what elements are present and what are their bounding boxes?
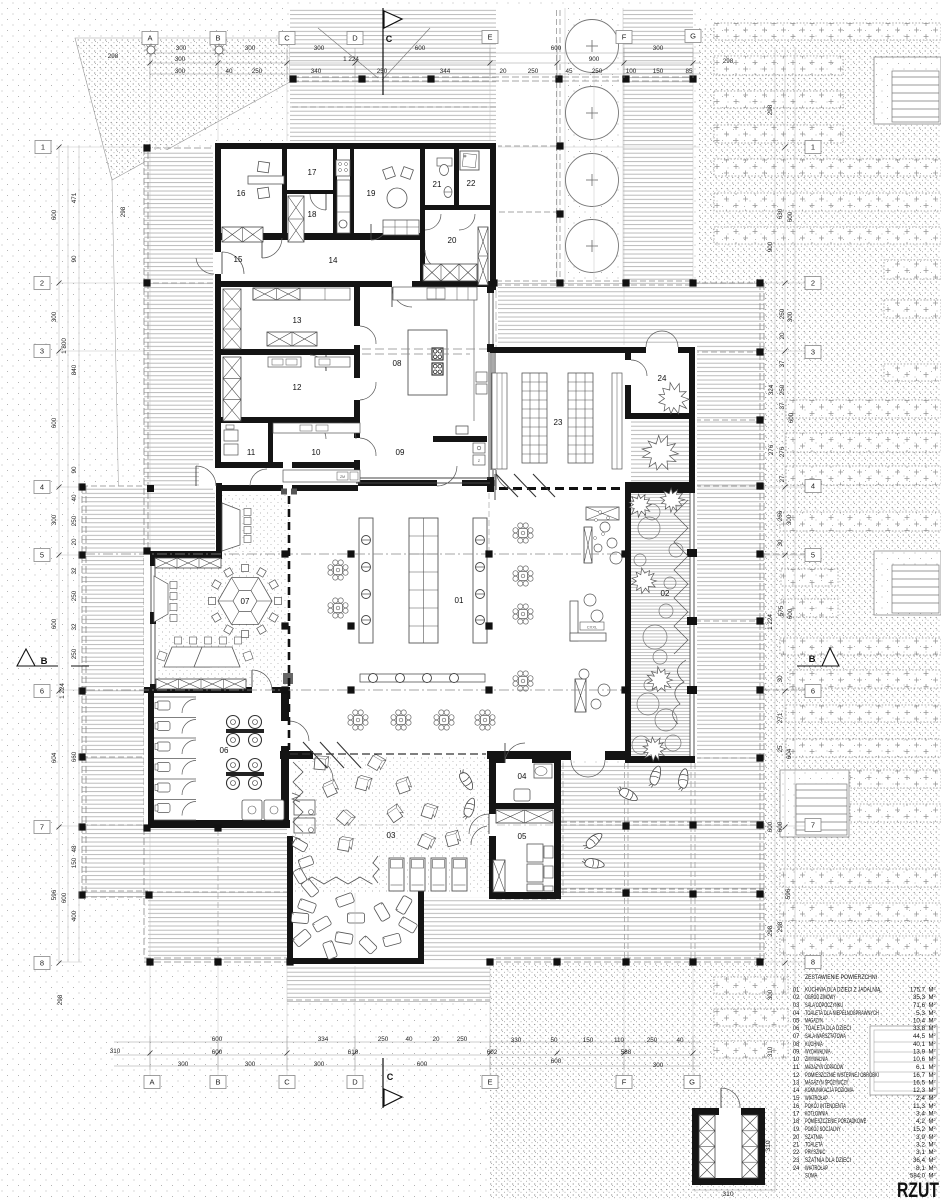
svg-text:16: 16 xyxy=(237,189,246,198)
svg-text:POMIESZCZENIE PORZĄDKOWE: POMIESZCZENIE PORZĄDKOWE xyxy=(805,1118,866,1125)
svg-text:ZMYWALNIA: ZMYWALNIA xyxy=(805,1056,828,1063)
svg-text:610: 610 xyxy=(348,1049,359,1056)
svg-text:276: 276 xyxy=(768,444,775,455)
svg-text:600: 600 xyxy=(417,1061,428,1068)
svg-text:10: 10 xyxy=(312,448,321,457)
svg-text:6: 6 xyxy=(811,687,815,696)
svg-text:8: 8 xyxy=(40,959,44,968)
svg-text:35,3: 35,3 xyxy=(913,994,926,1001)
svg-text:600: 600 xyxy=(51,417,58,428)
svg-text:G: G xyxy=(690,32,696,41)
svg-text:45: 45 xyxy=(565,68,573,75)
svg-text:WIATROŁAP: WIATROŁAP xyxy=(805,1165,828,1172)
svg-text:2: 2 xyxy=(40,279,44,288)
svg-text:08: 08 xyxy=(393,359,402,368)
svg-text:37: 37 xyxy=(779,360,786,368)
svg-text:03: 03 xyxy=(793,1002,800,1009)
svg-text:14: 14 xyxy=(793,1087,800,1094)
svg-text:TOALETA DLA NIEPEŁNOSPRAWNYCH: TOALETA DLA NIEPEŁNOSPRAWNYCH xyxy=(805,1010,879,1017)
svg-text:630: 630 xyxy=(777,208,784,219)
svg-text:340: 340 xyxy=(311,68,322,75)
svg-text:250: 250 xyxy=(378,1036,389,1043)
svg-text:48: 48 xyxy=(71,845,78,853)
svg-text:250: 250 xyxy=(377,68,388,75)
svg-text:15: 15 xyxy=(234,255,243,264)
svg-text:F: F xyxy=(622,1078,627,1087)
svg-text:SALA ODPOCZYNKU: SALA ODPOCZYNKU xyxy=(805,1002,843,1009)
svg-text:C: C xyxy=(386,34,393,44)
svg-text:23: 23 xyxy=(554,418,563,427)
svg-text:03: 03 xyxy=(387,831,396,840)
svg-text:90: 90 xyxy=(71,466,78,474)
svg-text:40: 40 xyxy=(676,1037,684,1044)
svg-text:1: 1 xyxy=(811,143,815,152)
svg-text:27: 27 xyxy=(779,475,786,483)
svg-text:A: A xyxy=(147,34,152,43)
svg-text:19: 19 xyxy=(367,189,376,198)
svg-text:30: 30 xyxy=(777,675,784,683)
svg-text:21: 21 xyxy=(433,180,442,189)
svg-text:22: 22 xyxy=(467,179,476,188)
svg-text:04: 04 xyxy=(793,1010,800,1017)
svg-text:300: 300 xyxy=(653,45,664,52)
svg-text:44,5: 44,5 xyxy=(913,1033,926,1040)
svg-text:600: 600 xyxy=(767,821,774,832)
svg-text:C: C xyxy=(284,34,290,43)
svg-text:WIATROŁAP: WIATROŁAP xyxy=(805,1095,828,1102)
svg-text:02: 02 xyxy=(661,589,670,598)
svg-text:3: 3 xyxy=(811,348,815,357)
svg-text:40: 40 xyxy=(225,68,233,75)
svg-text:3: 3 xyxy=(40,347,44,356)
svg-text:OGRÓD ZIMOWY: OGRÓD ZIMOWY xyxy=(805,994,836,1001)
svg-text:20: 20 xyxy=(779,332,786,340)
svg-text:300: 300 xyxy=(653,1062,664,1069)
svg-text:900: 900 xyxy=(767,241,774,252)
svg-text:40: 40 xyxy=(71,494,78,502)
svg-text:600: 600 xyxy=(787,211,794,222)
svg-text:15: 15 xyxy=(793,1095,800,1102)
svg-text:596: 596 xyxy=(785,888,792,899)
svg-text:20: 20 xyxy=(793,1134,800,1141)
svg-text:PRYSZNIC: PRYSZNIC xyxy=(805,1149,826,1156)
svg-text:37: 37 xyxy=(779,402,786,410)
svg-text:08: 08 xyxy=(793,1041,800,1048)
svg-text:12: 12 xyxy=(793,1072,800,1079)
svg-text:05: 05 xyxy=(793,1018,800,1025)
svg-text:TOALETA DLA DZIECI: TOALETA DLA DZIECI xyxy=(805,1025,851,1032)
svg-text:300: 300 xyxy=(786,514,793,525)
svg-text:600: 600 xyxy=(61,892,68,903)
svg-text:21: 21 xyxy=(793,1142,800,1149)
svg-text:SZATNIA DLA DZIECI: SZATNIA DLA DZIECI xyxy=(805,1157,851,1164)
svg-text:3,9: 3,9 xyxy=(916,1134,926,1141)
svg-text:WYDAWALNIA: WYDAWALNIA xyxy=(805,1049,831,1056)
svg-text:C: C xyxy=(284,1078,290,1087)
svg-text:300: 300 xyxy=(245,45,256,52)
svg-text:12,3: 12,3 xyxy=(913,1087,926,1094)
svg-text:G: G xyxy=(689,1078,695,1087)
svg-text:300: 300 xyxy=(175,68,186,75)
svg-text:600: 600 xyxy=(212,1036,223,1043)
svg-text:300: 300 xyxy=(176,45,187,52)
svg-text:SZATNIA: SZATNIA xyxy=(805,1134,823,1141)
svg-text:1 224: 1 224 xyxy=(59,683,66,699)
svg-text:4: 4 xyxy=(811,482,815,491)
svg-text:90: 90 xyxy=(71,255,78,263)
svg-text:250: 250 xyxy=(71,515,78,526)
svg-text:300: 300 xyxy=(175,56,186,63)
svg-text:E: E xyxy=(487,33,492,42)
svg-text:324: 324 xyxy=(768,384,775,395)
svg-text:600: 600 xyxy=(788,412,795,423)
svg-text:24: 24 xyxy=(793,1165,800,1172)
svg-text:3,1: 3,1 xyxy=(916,1149,926,1156)
svg-text:5: 5 xyxy=(811,551,815,560)
svg-text:11: 11 xyxy=(247,448,256,457)
svg-text:10: 10 xyxy=(793,1056,800,1063)
svg-text:4,2: 4,2 xyxy=(916,1118,926,1125)
svg-text:14: 14 xyxy=(329,256,338,265)
svg-text:E: E xyxy=(487,1078,492,1087)
svg-text:600: 600 xyxy=(551,45,562,52)
svg-text:600: 600 xyxy=(51,618,58,629)
svg-text:01: 01 xyxy=(455,596,464,605)
svg-text:1 224: 1 224 xyxy=(343,56,359,63)
svg-text:06: 06 xyxy=(220,746,229,755)
svg-text:25: 25 xyxy=(777,745,784,753)
svg-text:300: 300 xyxy=(51,514,58,525)
svg-text:MAGAZYN ODPADÓW: MAGAZYN ODPADÓW xyxy=(805,1064,843,1071)
svg-text:298: 298 xyxy=(723,58,734,65)
svg-text:13,9: 13,9 xyxy=(913,1049,926,1056)
svg-text:250: 250 xyxy=(592,68,603,75)
svg-text:250: 250 xyxy=(71,648,78,659)
svg-text:SUMA: SUMA xyxy=(805,1173,818,1180)
svg-text:CXXL: CXXL xyxy=(587,625,598,630)
svg-text:150: 150 xyxy=(653,68,664,75)
svg-text:110: 110 xyxy=(614,1037,625,1044)
svg-text:471: 471 xyxy=(71,192,78,203)
svg-text:C: C xyxy=(387,1072,394,1082)
svg-text:150: 150 xyxy=(583,1037,594,1044)
svg-text:150: 150 xyxy=(71,857,78,868)
svg-text:250: 250 xyxy=(647,1037,658,1044)
svg-text:12: 12 xyxy=(293,383,302,392)
svg-text:310: 310 xyxy=(722,1191,734,1198)
svg-text:32: 32 xyxy=(71,567,78,575)
svg-text:1 224: 1 224 xyxy=(767,614,774,630)
svg-text:588: 588 xyxy=(621,1049,632,1056)
svg-text:575: 575 xyxy=(778,605,785,616)
svg-text:POKÓJ INTENDENTA: POKÓJ INTENDENTA xyxy=(805,1103,846,1110)
svg-text:300: 300 xyxy=(51,311,58,322)
svg-text:276: 276 xyxy=(779,446,786,457)
svg-text:06: 06 xyxy=(793,1025,800,1032)
svg-text:11: 11 xyxy=(793,1064,800,1071)
svg-text:600: 600 xyxy=(51,209,58,220)
svg-text:840: 840 xyxy=(71,364,78,375)
svg-text:1 800: 1 800 xyxy=(61,338,68,354)
svg-text:33,8: 33,8 xyxy=(913,1025,926,1032)
svg-text:KUCHNIA DLA DZIECI Z JADALNIĄ,: KUCHNIA DLA DZIECI Z JADALNIĄ, xyxy=(805,987,882,994)
svg-text:8,1: 8,1 xyxy=(916,1165,926,1172)
svg-text:10,6: 10,6 xyxy=(913,1056,926,1063)
svg-text:09: 09 xyxy=(793,1049,800,1056)
svg-text:3,4: 3,4 xyxy=(916,1111,926,1118)
svg-text:KUCHNIA: KUCHNIA xyxy=(805,1041,823,1048)
svg-text:B: B xyxy=(215,34,220,43)
svg-text:602: 602 xyxy=(487,1049,498,1056)
svg-text:KOMUNIKACJA POZIOMA: KOMUNIKACJA POZIOMA xyxy=(805,1087,854,1094)
svg-text:MAGAZYN SPOŻYWCZY: MAGAZYN SPOŻYWCZY xyxy=(805,1080,848,1087)
svg-text:17: 17 xyxy=(793,1111,800,1118)
svg-text:596: 596 xyxy=(51,889,58,900)
svg-text:600: 600 xyxy=(777,821,784,832)
svg-text:300: 300 xyxy=(314,1061,325,1068)
svg-text:22: 22 xyxy=(793,1149,800,1156)
svg-text:D: D xyxy=(352,1078,358,1087)
svg-text:F: F xyxy=(622,33,627,42)
svg-text:5,3: 5,3 xyxy=(916,1010,926,1017)
svg-text:KOTŁOWNIA: KOTŁOWNIA xyxy=(805,1111,828,1118)
svg-text:20: 20 xyxy=(499,68,507,75)
svg-text:23: 23 xyxy=(793,1157,800,1164)
svg-text:07: 07 xyxy=(241,597,250,606)
svg-text:13: 13 xyxy=(293,316,302,325)
svg-text:7: 7 xyxy=(811,821,815,830)
svg-text:D: D xyxy=(352,34,358,43)
svg-text:400: 400 xyxy=(71,910,78,921)
svg-text:11,3: 11,3 xyxy=(913,1103,926,1110)
svg-text:16: 16 xyxy=(793,1103,800,1110)
svg-text:71,6: 71,6 xyxy=(913,1002,926,1009)
svg-text:30: 30 xyxy=(777,539,784,547)
svg-text:298: 298 xyxy=(767,104,774,115)
svg-text:50: 50 xyxy=(550,1037,558,1044)
svg-text:298: 298 xyxy=(108,53,119,60)
svg-text:B: B xyxy=(215,1078,220,1087)
svg-text:330: 330 xyxy=(511,1037,522,1044)
svg-text:MAGAZYN: MAGAZYN xyxy=(805,1018,823,1025)
svg-text:RZUT: RZUT xyxy=(897,1179,939,1200)
svg-text:2: 2 xyxy=(811,279,815,288)
svg-text:298: 298 xyxy=(120,206,127,217)
svg-text:13: 13 xyxy=(793,1080,800,1087)
svg-text:298: 298 xyxy=(777,921,784,932)
svg-text:100: 100 xyxy=(626,68,637,75)
svg-text:7: 7 xyxy=(40,823,44,832)
svg-text:20: 20 xyxy=(432,1036,440,1043)
svg-text:16,7: 16,7 xyxy=(913,1072,926,1079)
svg-text:32: 32 xyxy=(71,623,78,631)
svg-text:40,1: 40,1 xyxy=(913,1041,926,1048)
svg-text:ZESTAWIENIE POWIERZCHNI: ZESTAWIENIE POWIERZCHNI xyxy=(805,974,877,981)
svg-text:17: 17 xyxy=(308,168,317,177)
svg-text:07: 07 xyxy=(793,1033,800,1040)
svg-text:20: 20 xyxy=(71,538,78,546)
svg-text:POMIESZCZNIE WSTĘPNEJ OBRÓBKI: POMIESZCZNIE WSTĘPNEJ OBRÓBKI xyxy=(805,1072,879,1079)
svg-text:1: 1 xyxy=(41,143,45,152)
svg-text:B: B xyxy=(809,654,816,665)
svg-text:TOALETA: TOALETA xyxy=(805,1142,823,1149)
svg-text:18: 18 xyxy=(793,1118,800,1125)
svg-text:5: 5 xyxy=(40,551,44,560)
svg-text:85: 85 xyxy=(685,68,693,75)
svg-text:300: 300 xyxy=(767,989,774,1000)
svg-text:298: 298 xyxy=(767,925,774,936)
svg-text:6,1: 6,1 xyxy=(916,1064,926,1071)
svg-text:4: 4 xyxy=(40,483,44,492)
svg-text:8: 8 xyxy=(811,958,815,967)
svg-text:604: 604 xyxy=(51,752,58,763)
svg-text:600: 600 xyxy=(787,608,794,619)
svg-text:B: B xyxy=(41,656,48,667)
svg-text:3,2: 3,2 xyxy=(916,1142,926,1149)
svg-text:04: 04 xyxy=(518,772,527,781)
svg-text:300: 300 xyxy=(245,1061,256,1068)
svg-text:A: A xyxy=(149,1078,154,1087)
svg-text:344: 344 xyxy=(440,68,451,75)
svg-text:175,7: 175,7 xyxy=(910,987,926,994)
svg-text:266: 266 xyxy=(777,510,784,521)
svg-text:300: 300 xyxy=(178,1061,189,1068)
svg-text:600: 600 xyxy=(551,1058,562,1065)
svg-text:600: 600 xyxy=(212,1049,223,1056)
svg-text:01: 01 xyxy=(793,987,800,994)
svg-text:6: 6 xyxy=(40,687,44,696)
svg-text:ZM: ZM xyxy=(340,475,345,479)
svg-text:250: 250 xyxy=(252,68,263,75)
svg-text:20: 20 xyxy=(448,236,457,245)
svg-text:250: 250 xyxy=(779,308,786,319)
svg-text:310: 310 xyxy=(767,1046,774,1057)
svg-text:2,4: 2,4 xyxy=(916,1095,926,1102)
svg-text:660: 660 xyxy=(71,751,78,762)
svg-text:271: 271 xyxy=(777,712,784,723)
svg-text:24: 24 xyxy=(658,374,667,383)
svg-text:250: 250 xyxy=(779,384,786,395)
svg-text:310: 310 xyxy=(110,1048,121,1055)
svg-text:334: 334 xyxy=(318,1036,329,1043)
svg-text:10,4: 10,4 xyxy=(913,1018,926,1025)
svg-text:310: 310 xyxy=(765,1140,772,1152)
svg-text:15,2: 15,2 xyxy=(913,1126,926,1133)
svg-text:300: 300 xyxy=(787,311,794,322)
svg-text:250: 250 xyxy=(457,1036,468,1043)
svg-text:298: 298 xyxy=(57,994,64,1005)
svg-text:02: 02 xyxy=(793,994,800,1001)
svg-text:18: 18 xyxy=(308,210,317,219)
svg-text:POKÓJ SOCJALNY: POKÓJ SOCJALNY xyxy=(805,1126,841,1133)
svg-text:09: 09 xyxy=(396,448,405,457)
svg-text:19: 19 xyxy=(793,1126,800,1133)
svg-text:16,5: 16,5 xyxy=(913,1080,926,1087)
svg-text:05: 05 xyxy=(518,832,527,841)
svg-text:600: 600 xyxy=(415,45,426,52)
svg-text:250: 250 xyxy=(71,590,78,601)
svg-text:300: 300 xyxy=(314,45,325,52)
svg-text:SALA WARSZTATOWA: SALA WARSZTATOWA xyxy=(805,1033,846,1040)
svg-text:250: 250 xyxy=(528,68,539,75)
svg-text:900: 900 xyxy=(589,56,600,63)
svg-text:36,4: 36,4 xyxy=(913,1157,926,1164)
svg-text:604: 604 xyxy=(786,748,793,759)
svg-text:40: 40 xyxy=(405,1036,413,1043)
